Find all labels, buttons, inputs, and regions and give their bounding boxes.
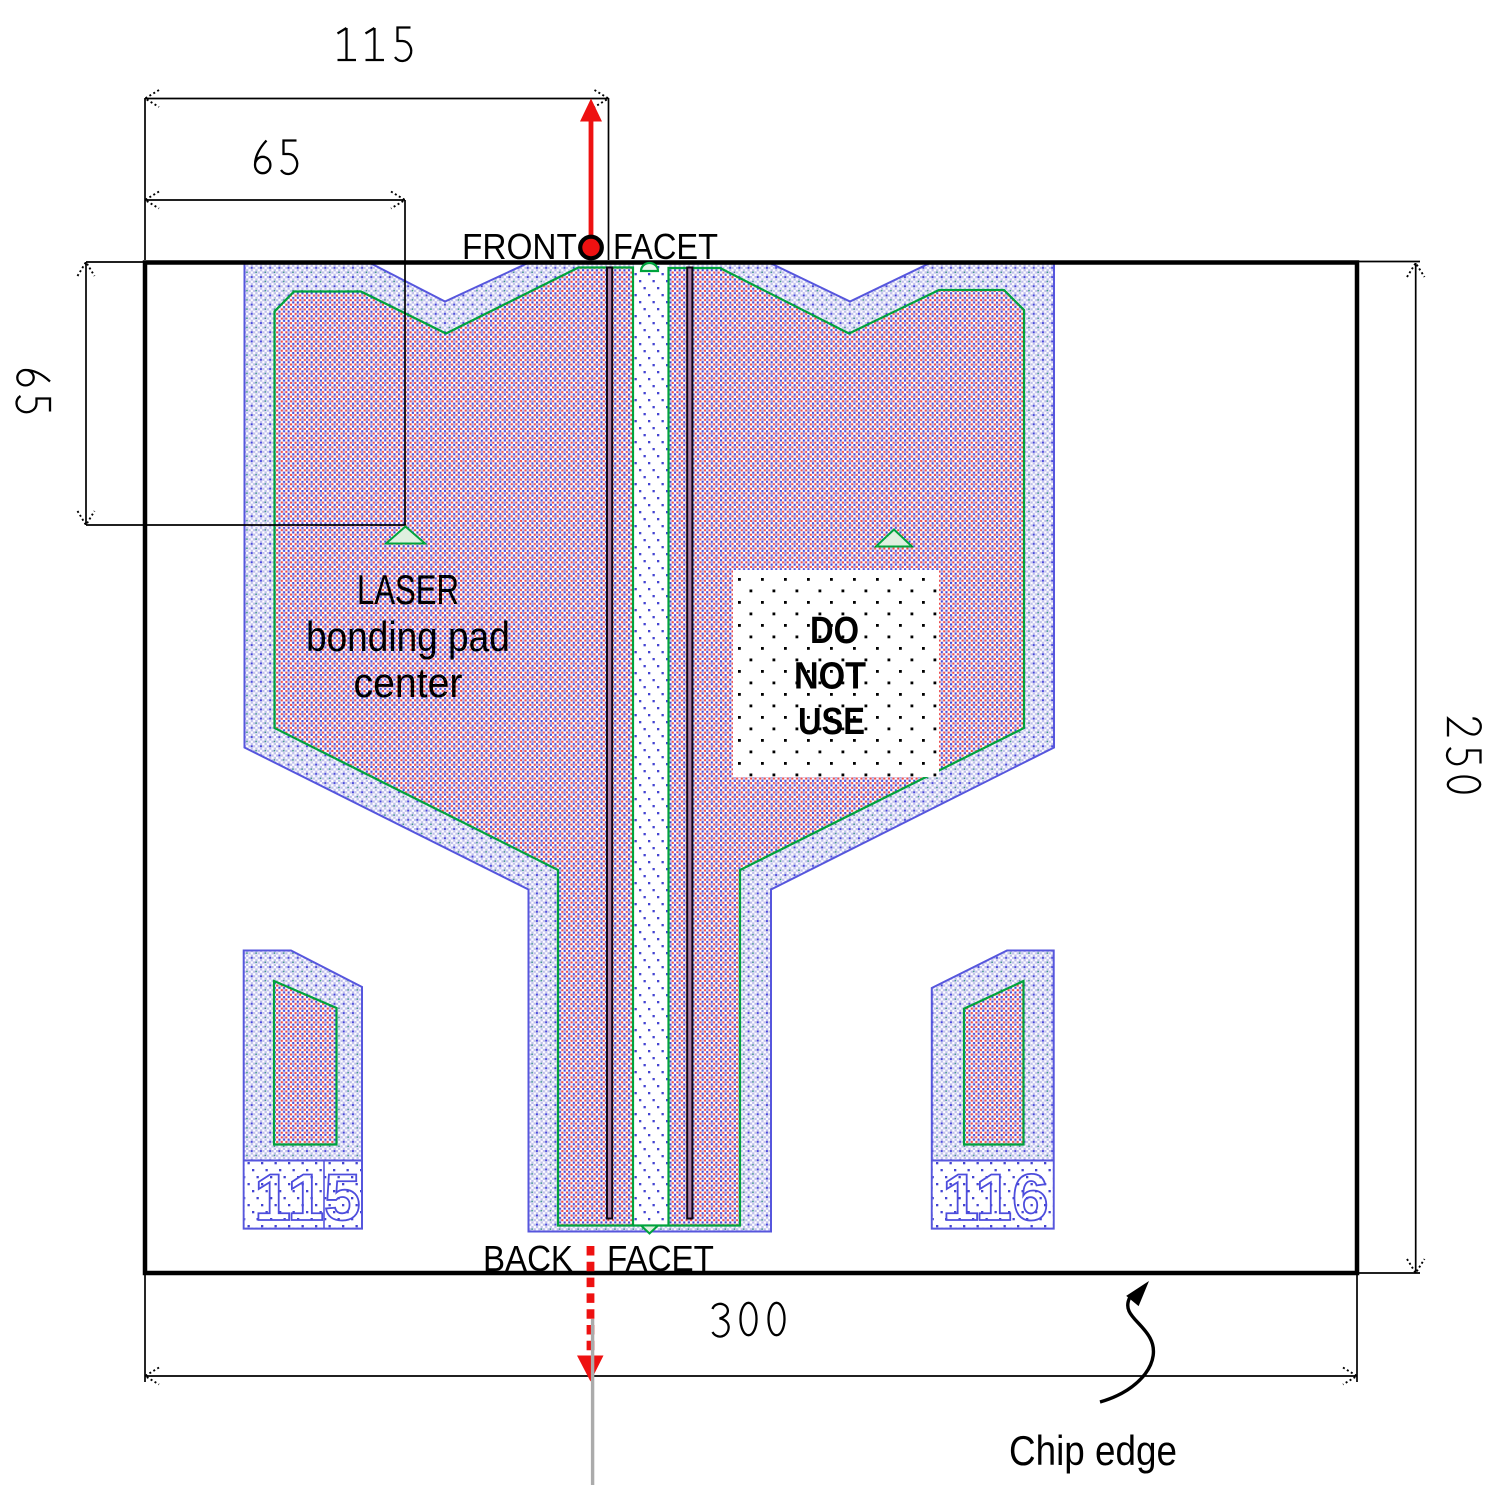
svg-text:FRONT: FRONT (462, 228, 577, 267)
svg-text:FACET: FACET (607, 1240, 714, 1280)
svg-text:FACET: FACET (613, 228, 718, 268)
svg-text:BACK: BACK (483, 1240, 573, 1280)
svg-text:115: 115 (254, 1160, 360, 1234)
svg-text:USE: USE (798, 700, 865, 743)
svg-text:DO: DO (810, 609, 859, 652)
svg-text:NOT: NOT (794, 654, 866, 697)
svg-text:Chip edge: Chip edge (1009, 1428, 1177, 1475)
svg-text:LASER: LASER (357, 567, 459, 614)
svg-text:116: 116 (942, 1160, 1048, 1234)
svg-text:bonding pad: bonding pad (306, 614, 510, 661)
svg-text:center: center (354, 659, 463, 707)
